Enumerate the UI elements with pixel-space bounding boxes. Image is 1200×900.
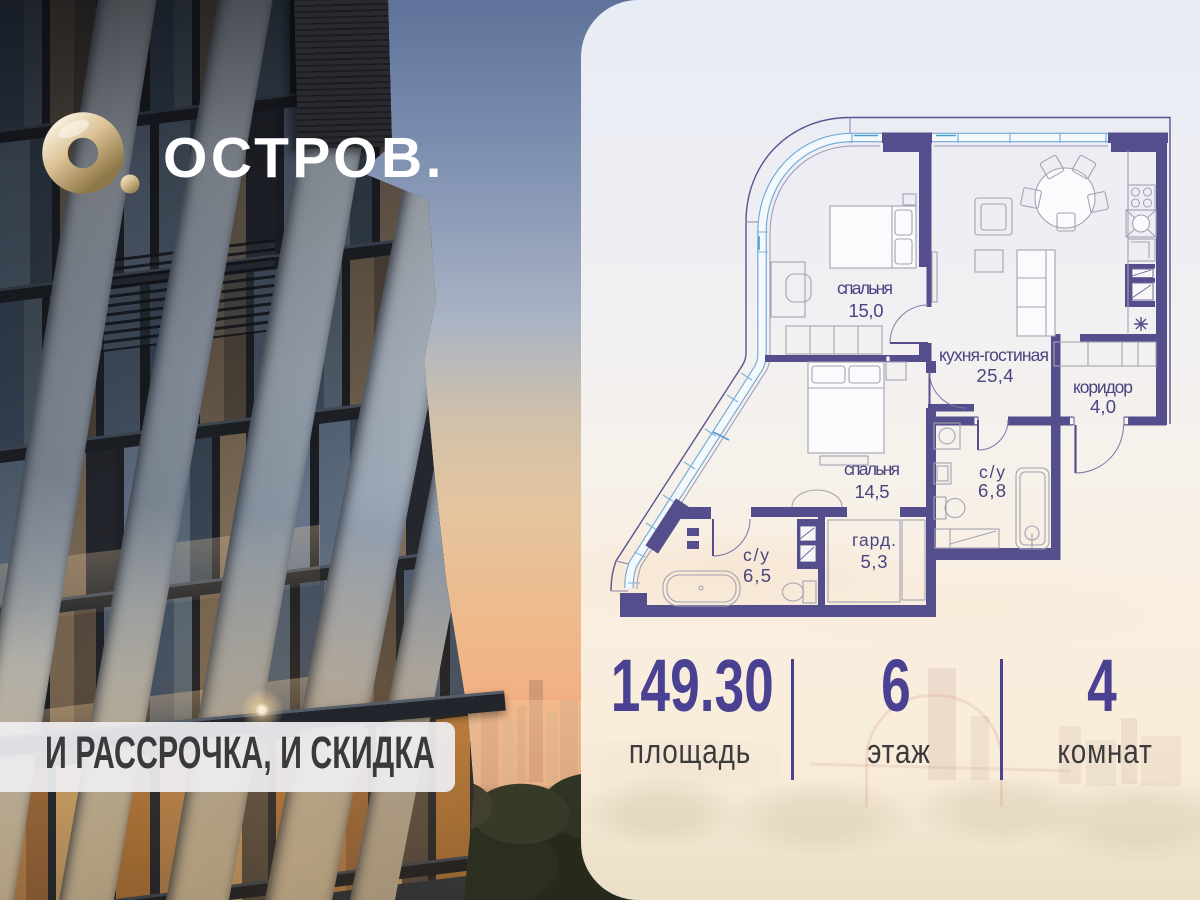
svg-text:25,4: 25,4 [977,365,1014,386]
svg-text:гард.: гард. [852,530,896,550]
svg-text:6,5: 6,5 [743,565,771,586]
svg-text:с/у: с/у [979,462,1005,482]
svg-text:15,0: 15,0 [849,300,884,321]
svg-text:6,8: 6,8 [978,480,1006,501]
svg-text:коридор: коридор [1073,377,1133,397]
svg-text:14,5: 14,5 [855,481,890,502]
svg-text:кухня-гостиная: кухня-гостиная [939,345,1049,365]
svg-text:4,0: 4,0 [1090,396,1116,417]
svg-text:спальня: спальня [844,459,900,479]
svg-text:5,3: 5,3 [861,551,888,572]
svg-text:с/у: с/у [743,545,769,565]
svg-text:спальня: спальня [837,278,893,298]
